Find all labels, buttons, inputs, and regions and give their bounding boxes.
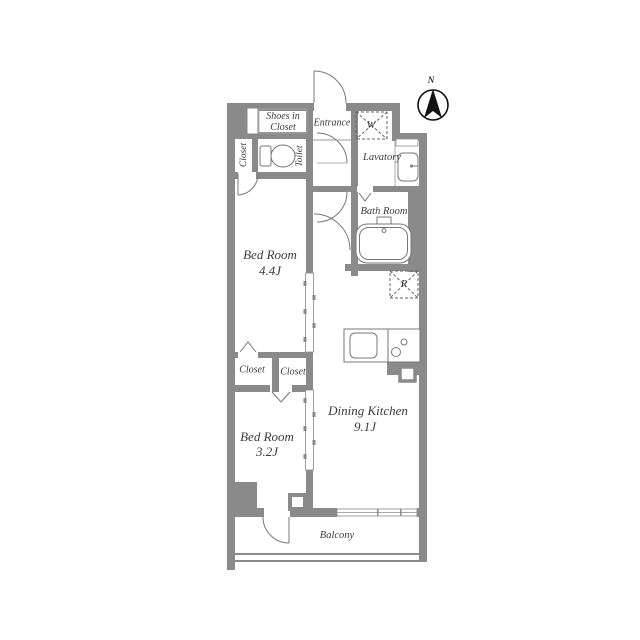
label-balcony: Balcony — [320, 530, 354, 542]
label-dining-kitchen-size: 9.1J — [354, 420, 376, 434]
wall-bath-bottom — [345, 264, 427, 271]
kitchen-sink-icon — [350, 333, 377, 358]
wall-entrance-right — [351, 111, 358, 186]
bathtub-icon — [356, 217, 411, 263]
dk-balcony-window — [337, 509, 417, 516]
balcony-rail-outer — [235, 553, 425, 555]
entrance-door — [314, 71, 346, 103]
label-closet-right: Closet — [280, 367, 306, 378]
label-closet-upper: Closet — [239, 143, 249, 167]
wall-lavatory-bottom-b — [373, 186, 427, 192]
floor-plan: Shoes in Closet Entrance W Lavatory Clos… — [0, 0, 640, 640]
wall-toilet-row-bottom-b — [256, 172, 313, 179]
upper-closet-door — [238, 174, 258, 195]
closet-fold-mark-down — [272, 392, 290, 402]
wall-closet-divider — [272, 352, 279, 392]
wall-closet-row-top-b — [258, 352, 313, 358]
floor-plan-drawing — [0, 0, 640, 640]
closet-fold-mark-up — [240, 342, 256, 352]
balcony-door — [263, 517, 289, 543]
bedroom2-sliding-door — [304, 390, 316, 470]
label-bath-room: Bath Room — [361, 206, 408, 218]
wall-closet-row-bottom-a — [235, 385, 270, 392]
hall-door-upper — [317, 133, 347, 163]
bath-fold-mark — [359, 193, 371, 201]
label-bedroom2-size: 3.2J — [256, 445, 278, 459]
label-shoes-closet-line1: Shoes in — [266, 111, 300, 122]
toilet-icon — [260, 145, 295, 167]
label-bedroom1-size: 4.4J — [259, 264, 281, 278]
label-entrance: Entrance — [314, 118, 351, 129]
lavatory-window — [396, 139, 418, 146]
pipe-shaft-bottom — [290, 495, 305, 509]
wall-sw-pillar — [232, 482, 257, 513]
dk-hall-door — [314, 214, 350, 250]
stove-burner-large — [392, 348, 401, 357]
label-shoes-closet: Shoes in Closet — [266, 111, 300, 133]
label-north: N — [428, 76, 435, 86]
label-fridge: R — [401, 279, 407, 291]
wall-shoes-block — [235, 111, 247, 133]
label-lavatory: Lavatory — [363, 152, 401, 164]
shoes-closet-door — [247, 108, 258, 134]
fixtures — [260, 112, 420, 362]
label-toilet: Toilet — [295, 145, 305, 166]
label-bedroom1-name: Bed Room — [243, 248, 297, 262]
bedroom1-sliding-door — [304, 273, 316, 352]
wall-top-left — [227, 103, 314, 111]
label-closet-left: Closet — [239, 365, 265, 376]
pipe-shaft-kitchen — [400, 367, 415, 381]
wall-top-right — [346, 103, 400, 111]
label-dining-kitchen-name: Dining Kitchen — [328, 404, 408, 418]
label-bedroom2-name: Bed Room — [240, 430, 294, 444]
wall-closet-toilet-divider — [252, 139, 258, 172]
wall-lavatory-bottom-a — [313, 186, 357, 192]
label-shoes-closet-line2: Closet — [266, 122, 300, 133]
lavatory-door — [317, 192, 347, 222]
kitchen-counter — [344, 329, 420, 362]
wall-corridor-left-upper — [306, 111, 313, 273]
north-arrow — [418, 89, 448, 120]
balcony-rail-inner — [235, 560, 425, 562]
label-washer: W — [367, 120, 376, 132]
wall-bottom-c — [417, 508, 427, 517]
wall-corridor-left-lower — [306, 470, 313, 517]
stove-burner-small — [401, 339, 407, 345]
wall-closet-row-top-a — [235, 352, 238, 358]
